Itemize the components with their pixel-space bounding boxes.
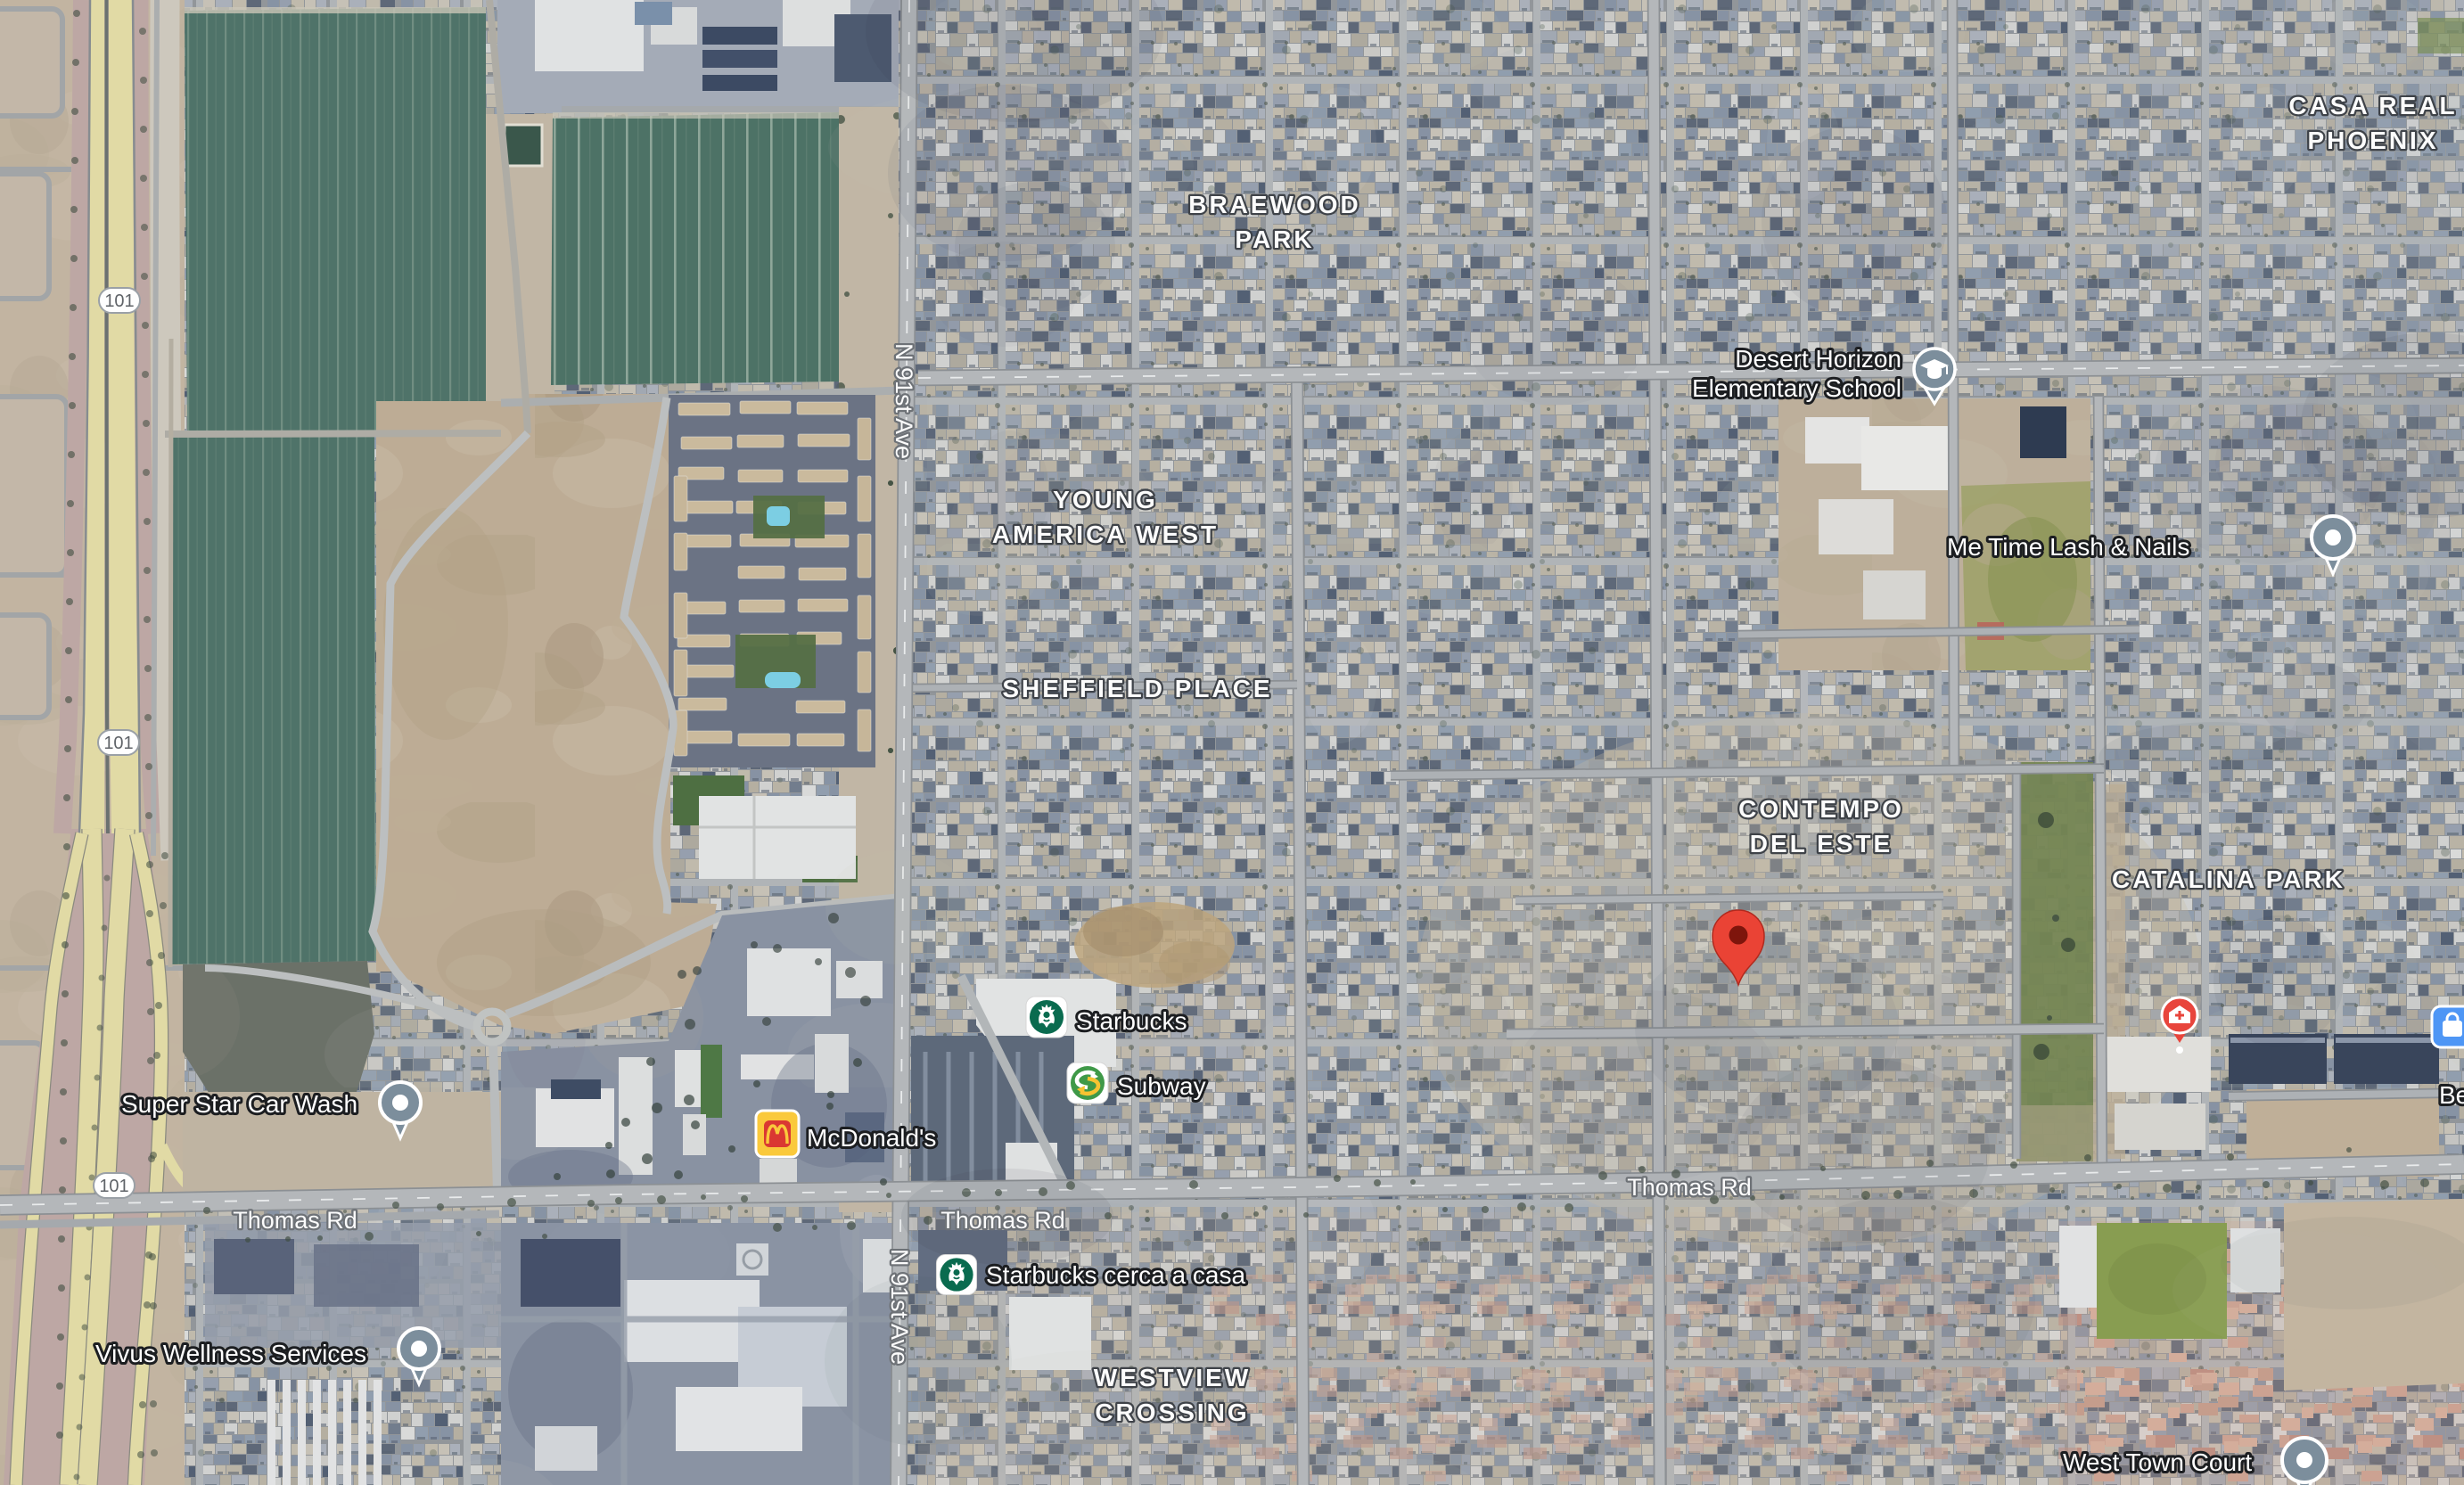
svg-text:Elementary School: Elementary School [1692, 374, 1901, 402]
svg-text:N 91st Ave: N 91st Ave [886, 1249, 913, 1365]
svg-text:101: 101 [99, 1177, 128, 1196]
svg-text:Subway: Subway [1117, 1072, 1206, 1100]
svg-text:McDonald's: McDonald's [807, 1124, 936, 1152]
svg-text:Thomas Rd: Thomas Rd [233, 1207, 357, 1234]
svg-text:Bel: Bel [2439, 1081, 2464, 1109]
svg-text:101: 101 [103, 734, 133, 753]
svg-text:SHEFFIELD PLACE: SHEFFIELD PLACE [1002, 675, 1272, 702]
svg-text:101: 101 [104, 291, 134, 311]
svg-text:Starbucks: Starbucks [1076, 1007, 1187, 1035]
svg-text:CATALINA PARK: CATALINA PARK [2112, 866, 2345, 893]
svg-text:West Town Court: West Town Court [2063, 1448, 2252, 1476]
svg-text:Me Time Lash & Nails: Me Time Lash & Nails [1947, 533, 2189, 561]
svg-text:Vivus Wellness Services: Vivus Wellness Services [95, 1340, 366, 1367]
svg-text:Super Star Car Wash: Super Star Car Wash [121, 1090, 357, 1118]
svg-text:N 91st Ave: N 91st Ave [891, 343, 917, 459]
svg-text:Starbucks cerca a casa: Starbucks cerca a casa [986, 1261, 1245, 1289]
svg-text:Thomas Rd: Thomas Rd [940, 1207, 1065, 1234]
svg-text:Thomas Rd: Thomas Rd [1627, 1174, 1752, 1201]
svg-text:Desert Horizon: Desert Horizon [1735, 345, 1901, 373]
